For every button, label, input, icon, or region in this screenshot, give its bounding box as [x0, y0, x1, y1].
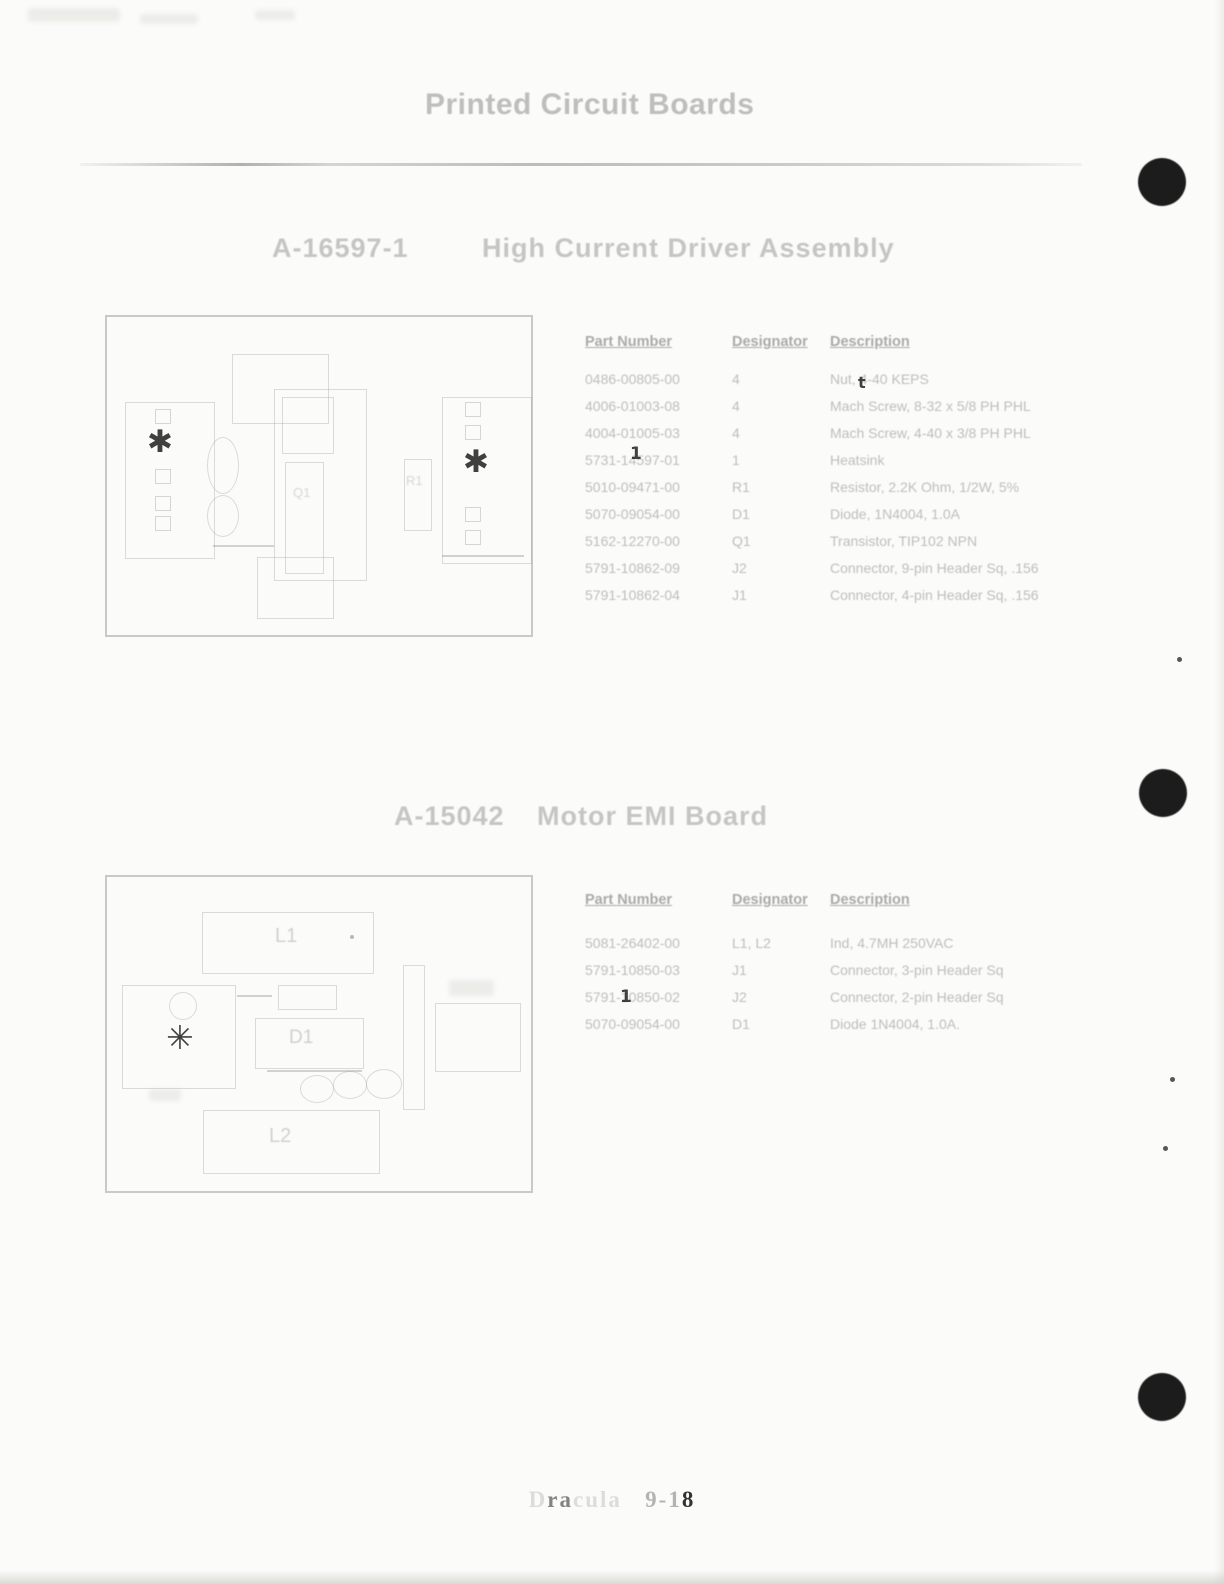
wire-loop-outline: [333, 1071, 367, 1099]
section2-part-number: A-15042: [394, 801, 505, 832]
cell-des: 4: [718, 420, 830, 447]
punch-hole-mark: [1139, 769, 1187, 817]
cell-des: D1: [718, 501, 830, 528]
connector-outline: [442, 397, 532, 564]
pcb-pad: [465, 402, 481, 417]
cell-des: D1: [718, 1011, 830, 1038]
cell-part: 5791-10850-02: [585, 984, 718, 1011]
punch-hole-mark: [1138, 158, 1186, 206]
punch-hole-mark: [1138, 1373, 1186, 1421]
component-label-q1: Q1: [293, 485, 310, 500]
component-marker-icon: ✳: [166, 1021, 194, 1054]
component-marker-icon: ✱: [463, 447, 489, 478]
col-header-part-number: Part Number: [585, 892, 718, 908]
cell-desc: Connector, 4-pin Header Sq, .156: [830, 582, 1130, 609]
table-row: 5081-26402-00L1, L2Ind, 4.7MH 250VAC: [585, 930, 1130, 957]
connector-outline: [435, 1003, 521, 1072]
scan-smudge: [28, 8, 120, 22]
wire-loop-outline: [300, 1075, 334, 1103]
pcb-trace: [213, 545, 274, 547]
footer-text-segment: 8: [682, 1487, 696, 1512]
cell-desc: Transistor, TIP102 NPN: [830, 528, 1130, 555]
cell-part: 5162-12270-00: [585, 528, 718, 555]
cell-desc: Ind, 4.7MH 250VAC: [830, 930, 1130, 957]
capacitor-outline: [207, 495, 239, 537]
pcb-trace: [237, 995, 272, 997]
col-header-part-number: Part Number: [585, 334, 718, 350]
cell-part: 0486-00805-00: [585, 366, 718, 393]
cell-desc: Diode, 1N4004, 1.0A: [830, 501, 1130, 528]
cell-desc: Connector, 9-pin Header Sq, .156: [830, 555, 1130, 582]
cell-part: 5010-09471-00: [585, 474, 718, 501]
cell-desc: Mach Screw, 4-40 x 3/8 PH PHL: [830, 420, 1130, 447]
cell-part: 5081-26402-00: [585, 930, 718, 957]
scanned-manual-page: Printed Circuit Boards A-16597-1 High Cu…: [0, 0, 1224, 1584]
page-footer: Dracula 9-18: [0, 1487, 1224, 1513]
pcb-pad: [155, 469, 171, 484]
component-label-l2: L2: [269, 1125, 291, 1148]
scan-smudge: [140, 14, 198, 24]
component-label-l1: L1: [275, 925, 297, 948]
dark-ink-glyph: 1: [620, 989, 632, 1006]
cell-part: 4004-01005-03: [585, 420, 718, 447]
scan-speck: [1170, 1077, 1175, 1082]
scan-smudge: [255, 10, 295, 20]
inductor-outline: [203, 1110, 380, 1174]
dark-ink-glyph: t: [858, 375, 866, 391]
scan-speck: [1163, 1146, 1168, 1151]
cell-des: J2: [718, 555, 830, 582]
table-row: 5791-10862-09J2Connector, 9-pin Header S…: [585, 555, 1130, 582]
table-row: 5791-10862-04J1Connector, 4-pin Header S…: [585, 582, 1130, 609]
table-row: 5791-10850-03J1Connector, 3-pin Header S…: [585, 957, 1130, 984]
wire-loop-outline: [366, 1069, 402, 1099]
col-header-designator: Designator: [718, 334, 830, 350]
divider: [80, 163, 1082, 166]
page-title: Printed Circuit Boards: [425, 88, 754, 122]
cell-desc: Resistor, 2.2K Ohm, 1/2W, 5%: [830, 474, 1130, 501]
cell-desc: Nut, 4-40 KEPS: [830, 366, 1130, 393]
component-label-d1: D1: [289, 1027, 313, 1049]
pcb-pad: [155, 516, 171, 531]
footer-text-segment: ra: [547, 1487, 573, 1512]
cell-desc: Diode 1N4004, 1.0A.: [830, 1011, 1130, 1038]
scan-smudge: [149, 1089, 181, 1101]
table-row: 5162-12270-00Q1Transistor, TIP102 NPN: [585, 528, 1130, 555]
cell-des: J1: [718, 957, 830, 984]
table-body: 5081-26402-00L1, L2Ind, 4.7MH 250VAC5791…: [585, 930, 1130, 1038]
pcb-trace: [442, 555, 524, 557]
cell-des: R1: [718, 474, 830, 501]
pcb-pad: [465, 530, 481, 545]
cell-desc: Heatsink: [830, 447, 1130, 474]
cell-part: 4006-01003-08: [585, 393, 718, 420]
scan-speck: [1177, 657, 1182, 662]
table-header-row: Part Number Designator Description: [585, 892, 1130, 908]
cell-desc: Connector, 3-pin Header Sq: [830, 957, 1130, 984]
table-row: 5791-10850-02J2Connector, 2-pin Header S…: [585, 984, 1130, 1011]
table-header-row: Part Number Designator Description: [585, 334, 1130, 350]
pcb-shape: [278, 985, 337, 1010]
cell-part: 5070-09054-00: [585, 501, 718, 528]
cell-des: J1: [718, 582, 830, 609]
table-row: 5070-09054-00D1Diode 1N4004, 1.0A.: [585, 1011, 1130, 1038]
pcb-shape: [257, 557, 334, 619]
footer-text-segment: [622, 1487, 645, 1512]
parts-table-motor-emi: Part Number Designator Description 5081-…: [585, 892, 1130, 1038]
scan-smudge: [449, 980, 494, 996]
capacitor-outline: [207, 437, 239, 494]
resistor-outline: [404, 459, 432, 531]
cell-part: 5070-09054-00: [585, 1011, 718, 1038]
table-row: 4004-01005-034Mach Screw, 4-40 x 3/8 PH …: [585, 420, 1130, 447]
cell-part: 5791-10862-09: [585, 555, 718, 582]
footer-text-segment: cula: [573, 1487, 622, 1512]
cell-des: L1, L2: [718, 930, 830, 957]
cell-desc: Connector, 2-pin Header Sq: [830, 984, 1130, 1011]
cell-des: 1: [718, 447, 830, 474]
scan-speck: [350, 935, 354, 939]
component-label-r1: R1: [406, 473, 423, 488]
cell-part: 5791-10850-03: [585, 957, 718, 984]
cell-des: 4: [718, 366, 830, 393]
cell-part: 5791-10862-04: [585, 582, 718, 609]
pcb-pad: [465, 425, 481, 440]
dark-ink-glyph: 1: [630, 446, 642, 463]
table-row: 5010-09471-00R1Resistor, 2.2K Ohm, 1/2W,…: [585, 474, 1130, 501]
section1-part-number: A-16597-1: [272, 233, 409, 264]
cell-part: 5731-14597-01: [585, 447, 718, 474]
section2-title: Motor EMI Board: [537, 801, 768, 832]
scan-edge-shadow: [0, 1570, 1224, 1584]
table-row: 5731-14597-011Heatsink: [585, 447, 1130, 474]
scan-edge-shadow: [1214, 0, 1224, 1584]
table-body: 0486-00805-004Nut, 4-40 KEPS4006-01003-0…: [585, 366, 1130, 609]
cell-desc: Mach Screw, 8-32 x 5/8 PH PHL: [830, 393, 1130, 420]
col-header-description: Description: [830, 334, 1130, 350]
section1-title: High Current Driver Assembly: [482, 233, 895, 264]
terminal-strip-outline: [403, 965, 425, 1110]
table-row: 5070-09054-00D1Diode, 1N4004, 1.0A: [585, 501, 1130, 528]
cell-des: Q1: [718, 528, 830, 555]
footer-text-segment: 9-1: [645, 1487, 682, 1512]
cell-des: J2: [718, 984, 830, 1011]
pcb-pad: [155, 409, 171, 424]
footer-text-segment: D: [529, 1487, 548, 1512]
col-header-description: Description: [830, 892, 1130, 908]
component-marker-icon: ✱: [147, 427, 173, 458]
cell-des: 4: [718, 393, 830, 420]
col-header-designator: Designator: [718, 892, 830, 908]
pcb-pad: [155, 496, 171, 511]
pcb-pad: [465, 507, 481, 522]
pcb-shape: [282, 397, 334, 454]
mounting-hole-outline: [169, 992, 197, 1020]
table-row: 4006-01003-084Mach Screw, 8-32 x 5/8 PH …: [585, 393, 1130, 420]
